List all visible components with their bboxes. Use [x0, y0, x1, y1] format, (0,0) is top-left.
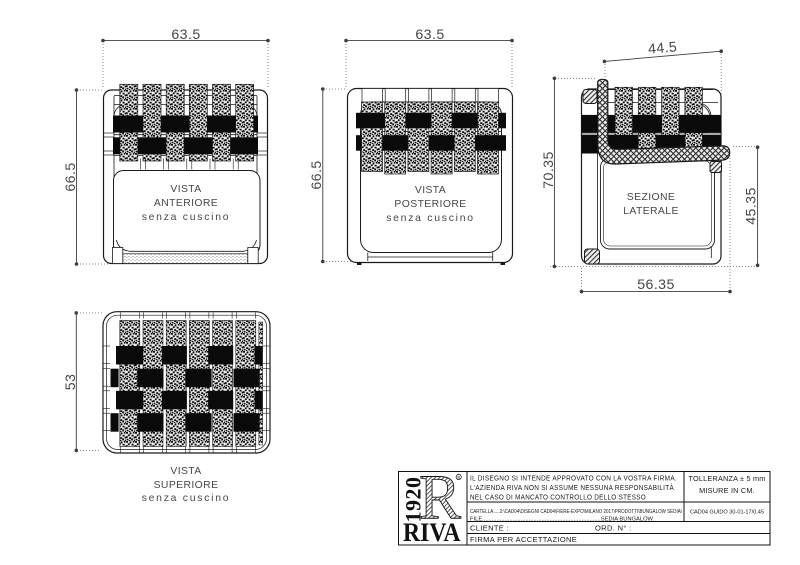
- svg-text:CAD04 GUIDO 30-01-17/0.45: CAD04 GUIDO 30-01-17/0.45: [690, 510, 765, 516]
- svg-text:FILE..........................: FILE....................................…: [470, 517, 653, 523]
- svg-text:MISURE IN CM.: MISURE IN CM.: [699, 486, 755, 495]
- svg-text:63.5: 63.5: [415, 27, 444, 43]
- svg-text:VISTA: VISTA: [415, 185, 446, 196]
- svg-text:66.5: 66.5: [63, 162, 79, 191]
- svg-text:RIVA: RIVA: [403, 518, 461, 547]
- svg-text:senza cuscino: senza cuscino: [142, 493, 231, 504]
- svg-text:SUPERIORE: SUPERIORE: [154, 480, 219, 491]
- svg-text:SEZIONE: SEZIONE: [627, 192, 675, 203]
- svg-text:63.5: 63.5: [171, 27, 200, 43]
- svg-text:POSTERIORE: POSTERIORE: [394, 199, 466, 210]
- svg-text:TOLLERANZA ± 5 mm: TOLLERANZA ± 5 mm: [688, 474, 765, 483]
- svg-text:VISTA: VISTA: [170, 466, 201, 477]
- svg-text:L'AZIENDA RIVA NON SI ASSUME N: L'AZIENDA RIVA NON SI ASSUME NESSUNA RES…: [470, 483, 674, 492]
- svg-text:senza cuscino: senza cuscino: [386, 213, 475, 224]
- svg-text:ORD. N° :: ORD. N° :: [595, 524, 632, 533]
- svg-text:R: R: [457, 475, 460, 480]
- svg-text:66.5: 66.5: [309, 160, 325, 189]
- svg-text:IL DISEGNO SI INTENDE APPROVAT: IL DISEGNO SI INTENDE APPROVATO CON LA V…: [470, 474, 677, 483]
- svg-text:FIRMA PER ACCETTAZIONE: FIRMA PER ACCETTAZIONE: [470, 535, 577, 544]
- svg-text:CARTELLA.....2:\CAD04\DISEGNI: CARTELLA.....2:\CAD04\DISEGNI CAD04\FIER…: [470, 509, 682, 515]
- svg-text:CLIENTE :: CLIENTE :: [470, 524, 509, 533]
- svg-text:56.35: 56.35: [637, 277, 675, 293]
- svg-text:44.5: 44.5: [647, 39, 678, 57]
- svg-text:70.35: 70.35: [541, 151, 557, 189]
- svg-text:VISTA: VISTA: [170, 184, 201, 195]
- svg-text:senza cuscino: senza cuscino: [142, 212, 231, 223]
- svg-text:53: 53: [63, 374, 79, 391]
- svg-text:LATERALE: LATERALE: [623, 206, 679, 217]
- svg-text:45.35: 45.35: [744, 187, 760, 225]
- svg-text:ANTERIORE: ANTERIORE: [154, 198, 218, 209]
- svg-text:NEL CASO DI MANCATO CONTROLLO: NEL CASO DI MANCATO CONTROLLO DELLO STES…: [470, 493, 646, 502]
